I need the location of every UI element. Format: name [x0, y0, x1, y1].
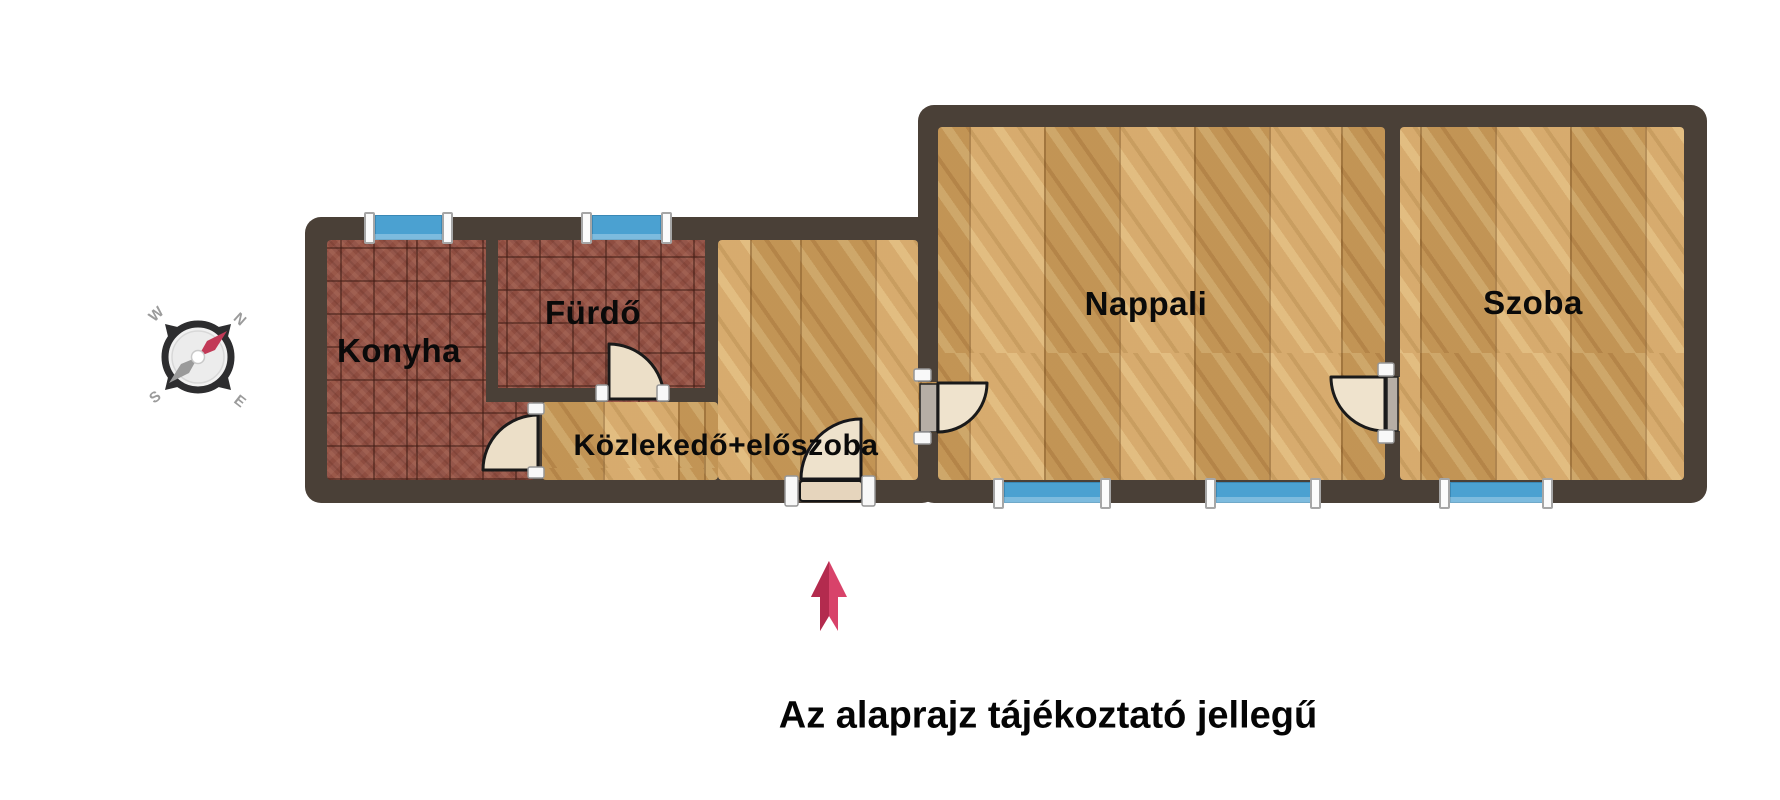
room-label-kozlekedo: Közlekedő+előszoba	[574, 429, 879, 463]
compass-needle-south	[169, 357, 198, 383]
room-label-konyha: Konyha	[337, 332, 461, 370]
floorplan-canvas: W N S E Konyha Fürdő Közlekedő+előszoba …	[0, 0, 1780, 800]
north-arrow-body	[811, 561, 847, 631]
window-konyha-cap-left	[364, 212, 375, 244]
compass-center-dot	[192, 351, 205, 364]
compass-spike-ne	[210, 324, 231, 345]
window-furdo-cap-left	[581, 212, 592, 244]
compass-needle-north	[198, 331, 227, 357]
room-label-nappali: Nappali	[1085, 285, 1208, 323]
compass-spike-nw	[165, 324, 186, 345]
wall-konyha-door-bottom	[533, 469, 543, 480]
room-label-furdo: Fürdő	[545, 294, 641, 332]
window-konyha	[375, 215, 442, 240]
window-konyha-cap-right	[442, 212, 453, 244]
window-furdo	[592, 215, 661, 240]
wall-nappali-szoba-bottom	[1385, 431, 1400, 480]
wall-konyha-furdo-divider	[486, 240, 498, 402]
compass-label-e: E	[231, 392, 249, 412]
wall-furdo-right	[705, 240, 718, 402]
compass-icon: W N S E	[145, 303, 249, 411]
window-nappali-1	[1004, 482, 1101, 503]
compass-label-n: N	[230, 309, 249, 329]
window-furdo-cap-right	[661, 212, 672, 244]
north-arrow-shade	[811, 561, 829, 631]
room-label-szoba: Szoba	[1483, 284, 1583, 322]
compass-label-w: W	[145, 303, 168, 326]
window-nappali-1-cap-right	[1100, 478, 1111, 509]
window-szoba-cap-right	[1542, 478, 1553, 509]
wall-nappali-szoba-top	[1385, 127, 1400, 377]
disclaimer-text: Az alaprajz tájékoztató jellegű	[779, 695, 1317, 738]
wall-furdo-bottom-left	[486, 388, 607, 402]
window-nappali-1-cap-left	[993, 478, 1004, 509]
north-arrow-icon	[811, 561, 847, 631]
compass-spike-sw	[165, 369, 186, 390]
window-szoba	[1450, 482, 1543, 503]
window-nappali-2-cap-left	[1205, 478, 1216, 509]
compass-face	[172, 331, 224, 383]
window-nappali-2-cap-right	[1310, 478, 1321, 509]
compass-spike-se	[210, 369, 231, 390]
window-szoba-cap-left	[1439, 478, 1450, 509]
compass-label-s: S	[146, 388, 164, 408]
wall-konyha-door-top	[533, 402, 543, 414]
compass-ring	[165, 324, 231, 390]
window-nappali-2	[1216, 482, 1311, 503]
doorway-patch-hall-nappali	[918, 382, 938, 433]
doorway-patch-nappali-szoba	[1385, 377, 1400, 431]
